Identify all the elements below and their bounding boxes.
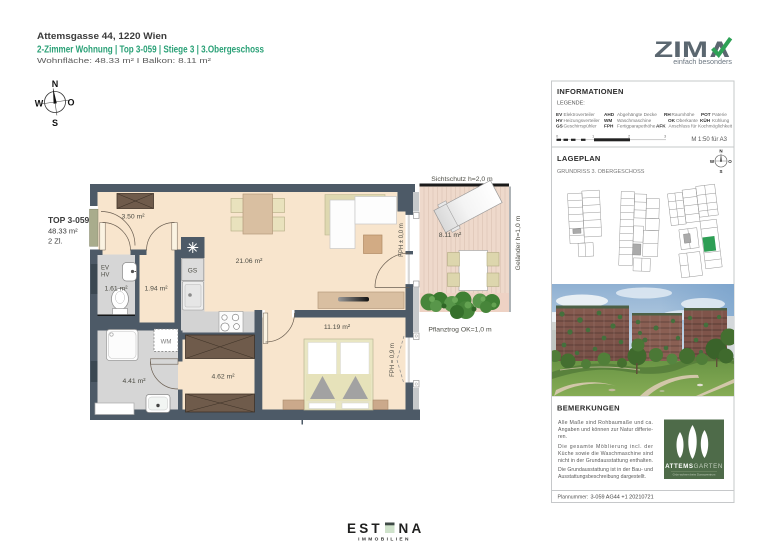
svg-text:KÜH: KÜH [700, 117, 711, 123]
svg-text:Küche sowie die Waschmaschine: Küche sowie die Waschmaschine sind [558, 451, 653, 457]
svg-text:POT: POT [701, 112, 711, 117]
svg-text:AFK: AFK [656, 124, 666, 129]
svg-text:W: W [35, 99, 44, 109]
svg-text:AHD: AHD [604, 112, 615, 117]
svg-text:GRUNDRISS 3. OBERGESCHOSS: GRUNDRISS 3. OBERGESCHOSS [557, 169, 645, 175]
svg-text:0: 0 [556, 133, 559, 138]
svg-text:GS: GS [188, 268, 198, 275]
svg-text:Alle Maße sind Rohbaumaße und: Alle Maße sind Rohbaumaße und ca. [558, 420, 653, 426]
svg-text:Waschmaschine: Waschmaschine [617, 118, 652, 123]
svg-text:TOP 3-059: TOP 3-059 [48, 215, 90, 225]
svg-text:1.61 m²: 1.61 m² [104, 286, 128, 293]
svg-text:IMMOBILIEN: IMMOBILIEN [358, 537, 411, 543]
svg-text:nicht in der Grundausstattung: nicht in der Grundausstattung enthalten. [558, 458, 653, 464]
svg-text:21.06 m²: 21.06 m² [236, 258, 264, 265]
svg-text:3.50 m²: 3.50 m² [121, 214, 145, 221]
svg-text:Grün wohnen beim Donauzentrum: Grün wohnen beim Donauzentrum [673, 473, 716, 477]
svg-text:EST: EST [347, 521, 383, 536]
svg-text:Raumhöhe: Raumhöhe [672, 112, 695, 117]
svg-text:1.94 m²: 1.94 m² [144, 286, 168, 293]
svg-text:Attemsgasse 44, 1220 Wien: Attemsgasse 44, 1220 Wien [37, 31, 167, 42]
svg-text:Geländer h=1,0 m: Geländer h=1,0 m [515, 215, 522, 270]
svg-text:Pflanztrog OK=1,0 m: Pflanztrog OK=1,0 m [428, 327, 492, 334]
svg-text:Wohnfläche: 48.33 m² I Balko: Wohnfläche: 48.33 m² I Balkon: 8.11 m² [37, 58, 212, 65]
svg-text:3: 3 [664, 133, 667, 138]
svg-text:S: S [719, 169, 722, 174]
svg-text:2-Zimmer Wohnung | Top 3-059 |: 2-Zimmer Wohnung | Top 3-059 | Stiege 3 … [37, 45, 264, 56]
svg-text:HV: HV [556, 118, 563, 123]
svg-text:BEMERKUNGEN: BEMERKUNGEN [557, 404, 620, 413]
svg-text:RH: RH [664, 112, 671, 117]
svg-text:EV: EV [101, 266, 109, 272]
svg-text:S: S [52, 118, 58, 128]
svg-text:WM: WM [604, 118, 612, 123]
svg-text:Ausstattungsbeschreibung darge: Ausstattungsbeschreibung dargestellt. [558, 474, 646, 480]
svg-text:LEGENDE:: LEGENDE: [557, 101, 585, 107]
svg-text:FPH: FPH [604, 124, 614, 129]
svg-text:O: O [67, 98, 74, 108]
svg-text:2 Zl.: 2 Zl. [48, 237, 63, 246]
svg-text:1: 1 [592, 133, 595, 138]
svg-text:Geschirrspühler: Geschirrspühler [564, 124, 598, 129]
svg-text:LAGEPLAN: LAGEPLAN [557, 154, 601, 163]
svg-text:N: N [52, 79, 59, 89]
svg-text:Anschluss für Kochmöglichkeit: Anschluss für Kochmöglichkeit [669, 124, 733, 129]
svg-text:GS: GS [556, 124, 563, 129]
svg-text:Abgehängte Decke: Abgehängte Decke [617, 112, 657, 117]
svg-text:Heizungsverteiler: Heizungsverteiler [564, 118, 601, 123]
svg-text:Die Grundausstattung ist in de: Die Grundausstattung ist in der Bau- und [558, 467, 653, 473]
svg-text:M 1:50 für A3: M 1:50 für A3 [691, 137, 727, 143]
svg-text:OK: OK [668, 118, 676, 123]
svg-text:ATTEMSGARTEN: ATTEMSGARTEN [665, 463, 723, 470]
svg-text:4.41 m²: 4.41 m² [122, 378, 146, 385]
svg-text:Angaben und können zur Natur d: Angaben und können zur Natur differie- [558, 427, 653, 433]
svg-text:O: O [728, 159, 732, 164]
svg-text:48.33 m²: 48.33 m² [48, 227, 78, 236]
svg-text:WM: WM [161, 340, 172, 346]
svg-text:8.11 m²: 8.11 m² [439, 232, 462, 239]
svg-text:2: 2 [628, 133, 631, 138]
svg-text:ren.: ren. [558, 434, 567, 440]
svg-text:Elektroverteiler: Elektroverteiler [564, 112, 596, 117]
svg-text:3-059 AG44 +1 20210721: 3-059 AG44 +1 20210721 [591, 495, 654, 501]
svg-text:HV: HV [101, 273, 109, 279]
svg-text:NA: NA [399, 521, 425, 536]
svg-text:INFORMATIONEN: INFORMATIONEN [557, 87, 624, 96]
svg-text:Sichtschutz h=2,0 m: Sichtschutz h=2,0 m [431, 176, 493, 183]
svg-text:FPH = 0,9 m: FPH = 0,9 m [390, 343, 396, 377]
svg-text:Kühlung: Kühlung [712, 118, 730, 123]
svg-text:Fertigparapethöhe: Fertigparapethöhe [617, 124, 656, 129]
svg-text:Oberkante: Oberkante [676, 118, 698, 123]
svg-text:FPH ± 0,0 m: FPH ± 0,0 m [399, 223, 405, 257]
svg-text:EV: EV [556, 112, 563, 117]
svg-text:W: W [710, 159, 715, 164]
svg-text:Paterie: Paterie [712, 112, 727, 117]
svg-text:Die gesamte Möblierung incl. d: Die gesamte Möblierung incl. der [558, 444, 653, 450]
svg-text:11.19 m²: 11.19 m² [324, 324, 351, 331]
svg-text:einfach besonders: einfach besonders [673, 57, 732, 66]
svg-text:4.62 m²: 4.62 m² [211, 374, 235, 381]
svg-text:Plannummer:: Plannummer: [558, 495, 589, 501]
svg-text:N: N [719, 149, 722, 154]
